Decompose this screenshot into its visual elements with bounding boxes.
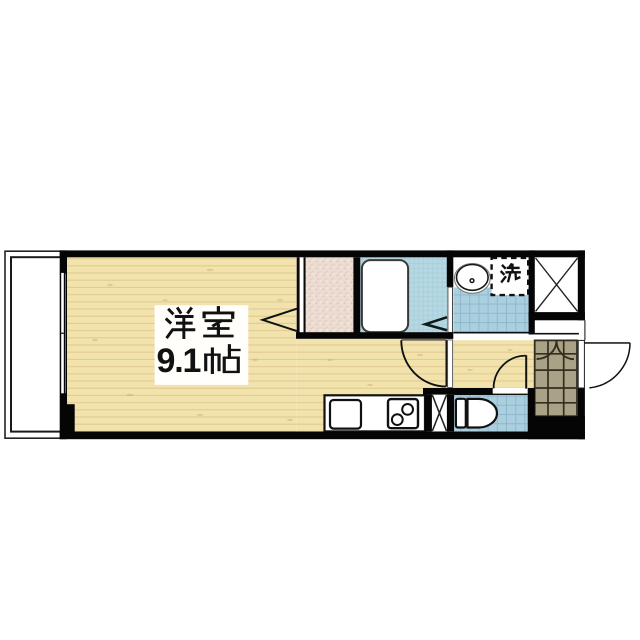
svg-text:9.1: 9.1 <box>157 342 201 380</box>
